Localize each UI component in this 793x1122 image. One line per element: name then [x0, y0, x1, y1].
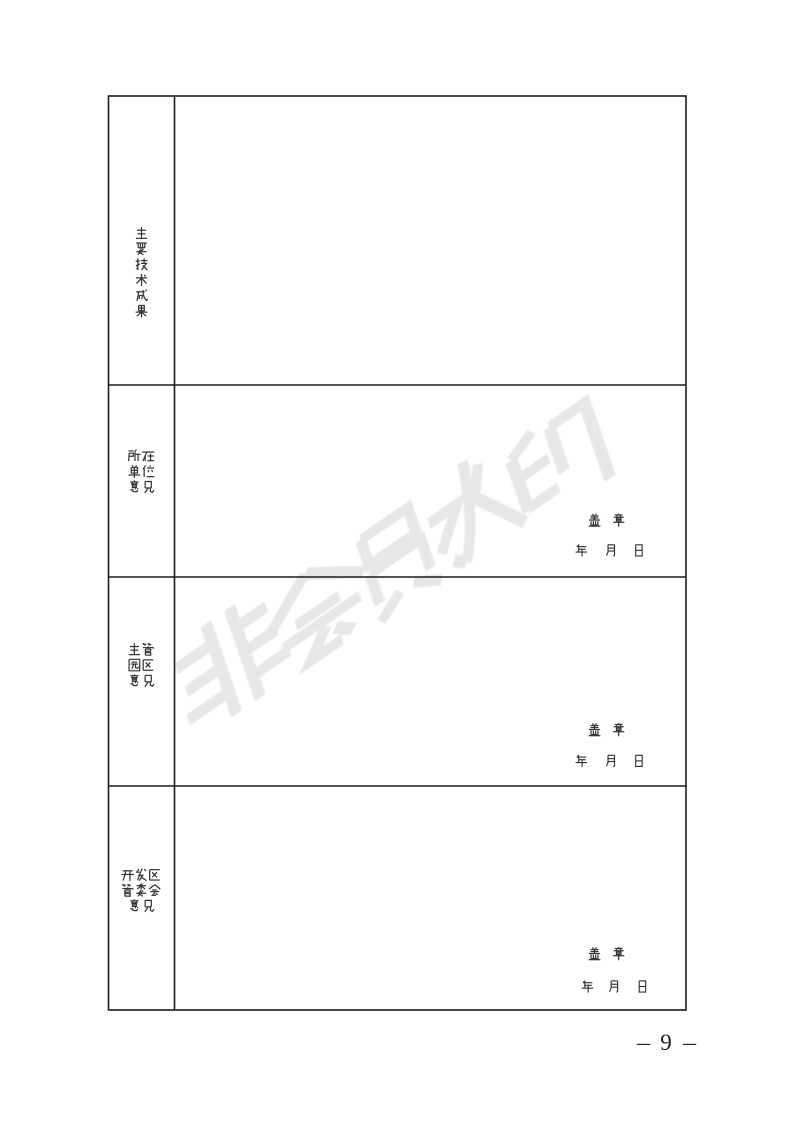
svg-text:–: –: [682, 1030, 697, 1055]
svg-text:9: 9: [660, 1030, 672, 1055]
svg-text:–: –: [636, 1030, 651, 1055]
